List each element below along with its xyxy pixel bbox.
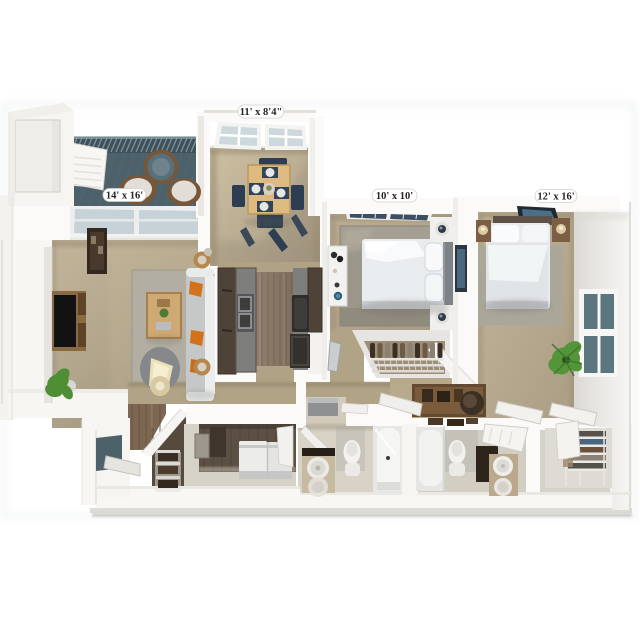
svg-text:12' x 16': 12' x 16' (537, 192, 574, 203)
svg-text:14' x 16': 14' x 16' (106, 191, 143, 202)
svg-text:11' x 8'4": 11' x 8'4" (240, 107, 283, 118)
svg-text:10' x 10': 10' x 10' (376, 191, 413, 202)
